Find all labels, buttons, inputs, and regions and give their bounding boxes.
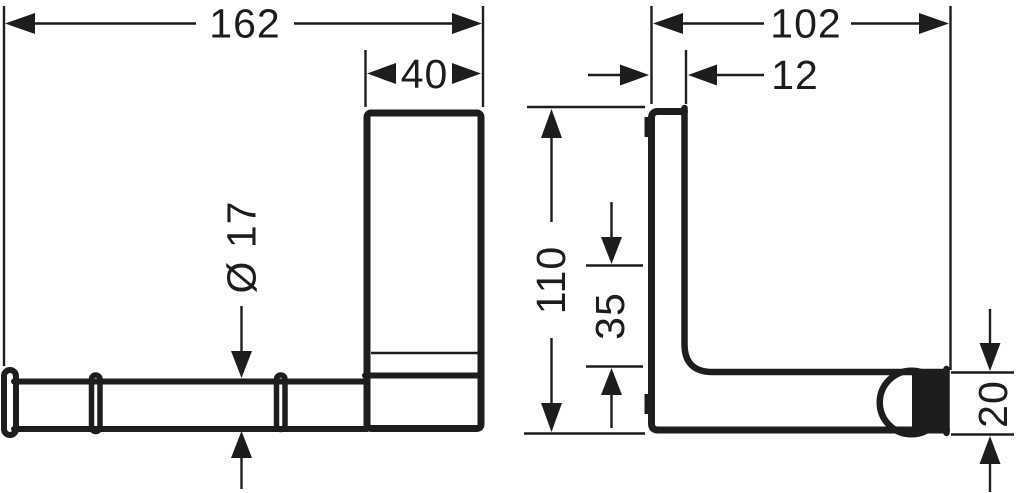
- mounting-pin-top: [645, 117, 650, 137]
- bracket-profile: [645, 108, 948, 434]
- arrowhead: [5, 13, 35, 34]
- front-view: 162 40 Ø 17: [4, 1, 483, 490]
- arrowhead: [452, 63, 481, 84]
- dim-bar-top-offset: 35: [586, 202, 643, 428]
- technical-drawing-canvas: 162 40 Ø 17: [0, 0, 1016, 493]
- arrowhead: [231, 351, 252, 378]
- mounting-pin-bottom: [645, 394, 650, 414]
- arrowhead: [541, 403, 562, 432]
- dim-label-overall-width: 162: [209, 1, 280, 47]
- arrowhead: [452, 13, 482, 34]
- bar-end-cap: [4, 370, 16, 435]
- arrowhead: [231, 431, 252, 458]
- dimension-drawing: 162 40 Ø 17: [0, 0, 1016, 493]
- dim-plate-thickness: 12: [588, 50, 819, 104]
- dim-label-plate-width: 40: [401, 51, 449, 97]
- arrowhead: [653, 13, 683, 34]
- dim-label-overall-depth: 102: [770, 1, 841, 47]
- plate-outer-edge: [652, 112, 947, 431]
- arrowhead: [688, 65, 717, 86]
- arrowhead: [601, 237, 622, 264]
- dim-label-overall-height: 110: [528, 246, 574, 314]
- mounting-plate-front: [365, 113, 481, 429]
- arrowhead: [367, 63, 396, 84]
- plate-inner-edge: [685, 108, 947, 372]
- side-view: 102 12 110 35: [524, 1, 1016, 493]
- dim-label-bar-top-offset: 35: [587, 292, 633, 340]
- dim-label-bar-end-height: 20: [970, 380, 1016, 428]
- dim-plate-width: 40: [366, 50, 482, 107]
- arrowhead: [620, 65, 649, 86]
- arrowhead: [541, 109, 562, 138]
- roll-bar: [14, 382, 367, 430]
- dim-bar-diameter: Ø 17: [219, 201, 265, 489]
- arrowhead: [601, 368, 622, 395]
- arrowhead: [919, 13, 949, 34]
- plate-outline: [367, 113, 481, 429]
- dim-label-bar-diameter: Ø 17: [219, 201, 265, 294]
- dim-overall-height: 110: [524, 107, 645, 434]
- dim-label-plate-thickness: 12: [771, 52, 819, 98]
- arrowhead: [980, 436, 1001, 464]
- arrowhead: [980, 343, 1001, 371]
- dim-bar-end-height: 20: [951, 309, 1016, 492]
